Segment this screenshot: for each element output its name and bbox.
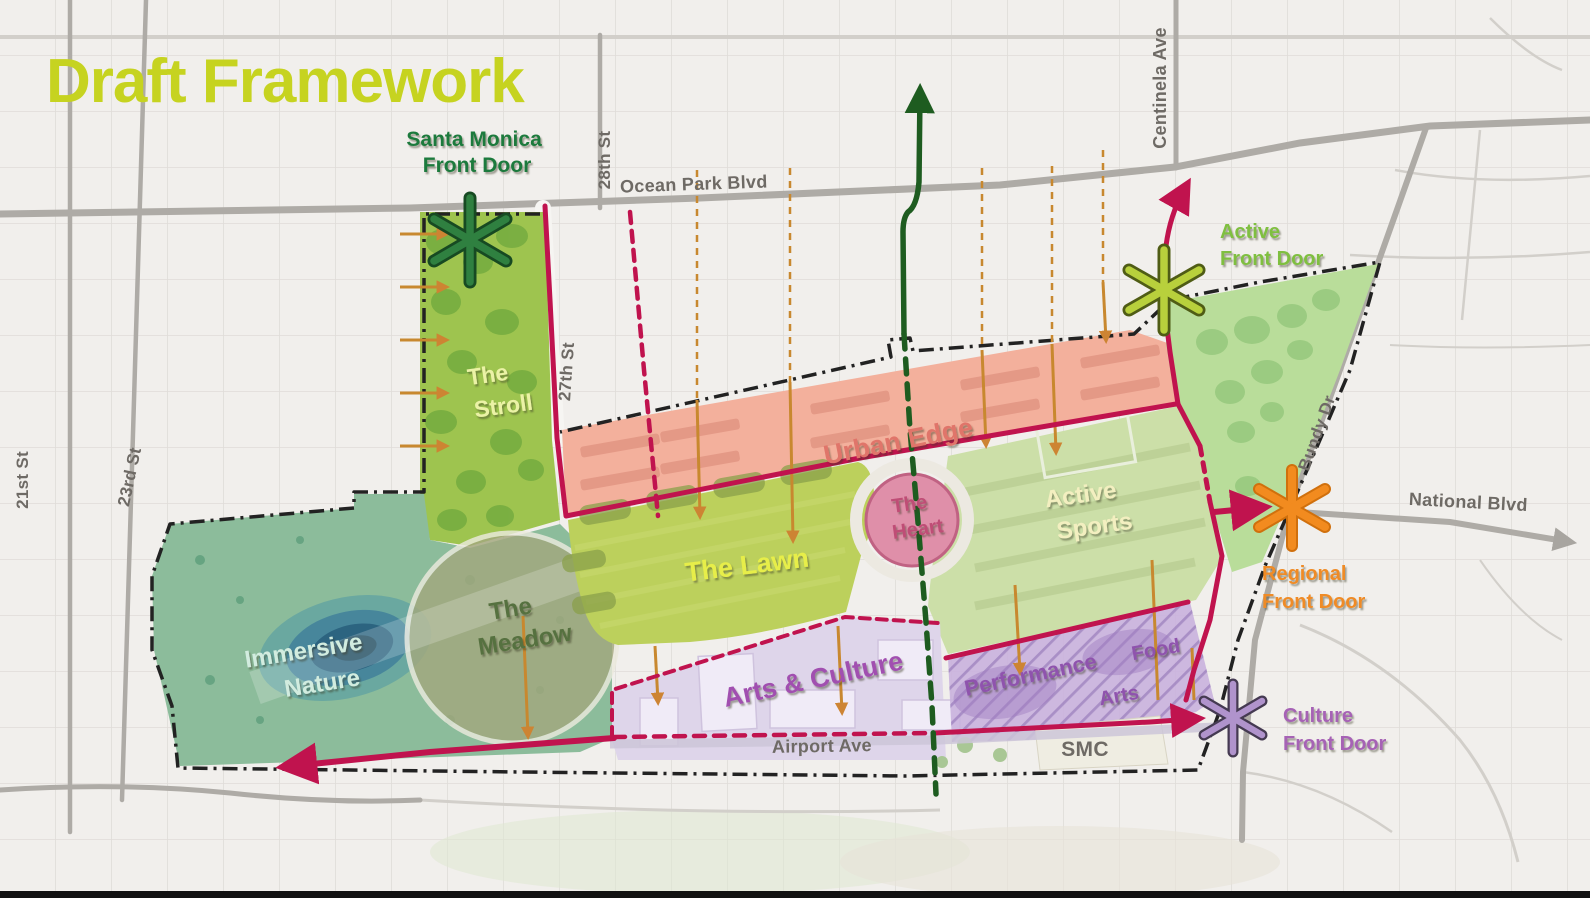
- 28th-st-label: 28th St: [595, 131, 614, 190]
- bottom-bar: [0, 891, 1590, 898]
- page-title: Draft Framework: [46, 47, 525, 116]
- route-regional-arrow: [1214, 508, 1256, 512]
- framework-map-slide: Ocean Park Blvd 28th St Centinela Ave 27…: [0, 0, 1590, 898]
- centinela-ave-label: Centinela Ave: [1150, 27, 1170, 149]
- framework-map: Ocean Park Blvd 28th St Centinela Ave 27…: [0, 0, 1590, 898]
- airport-ave-label: Airport Ave: [772, 735, 872, 757]
- 21st-st-label: 21st St: [13, 451, 32, 509]
- smc-label: SMC: [1061, 738, 1109, 761]
